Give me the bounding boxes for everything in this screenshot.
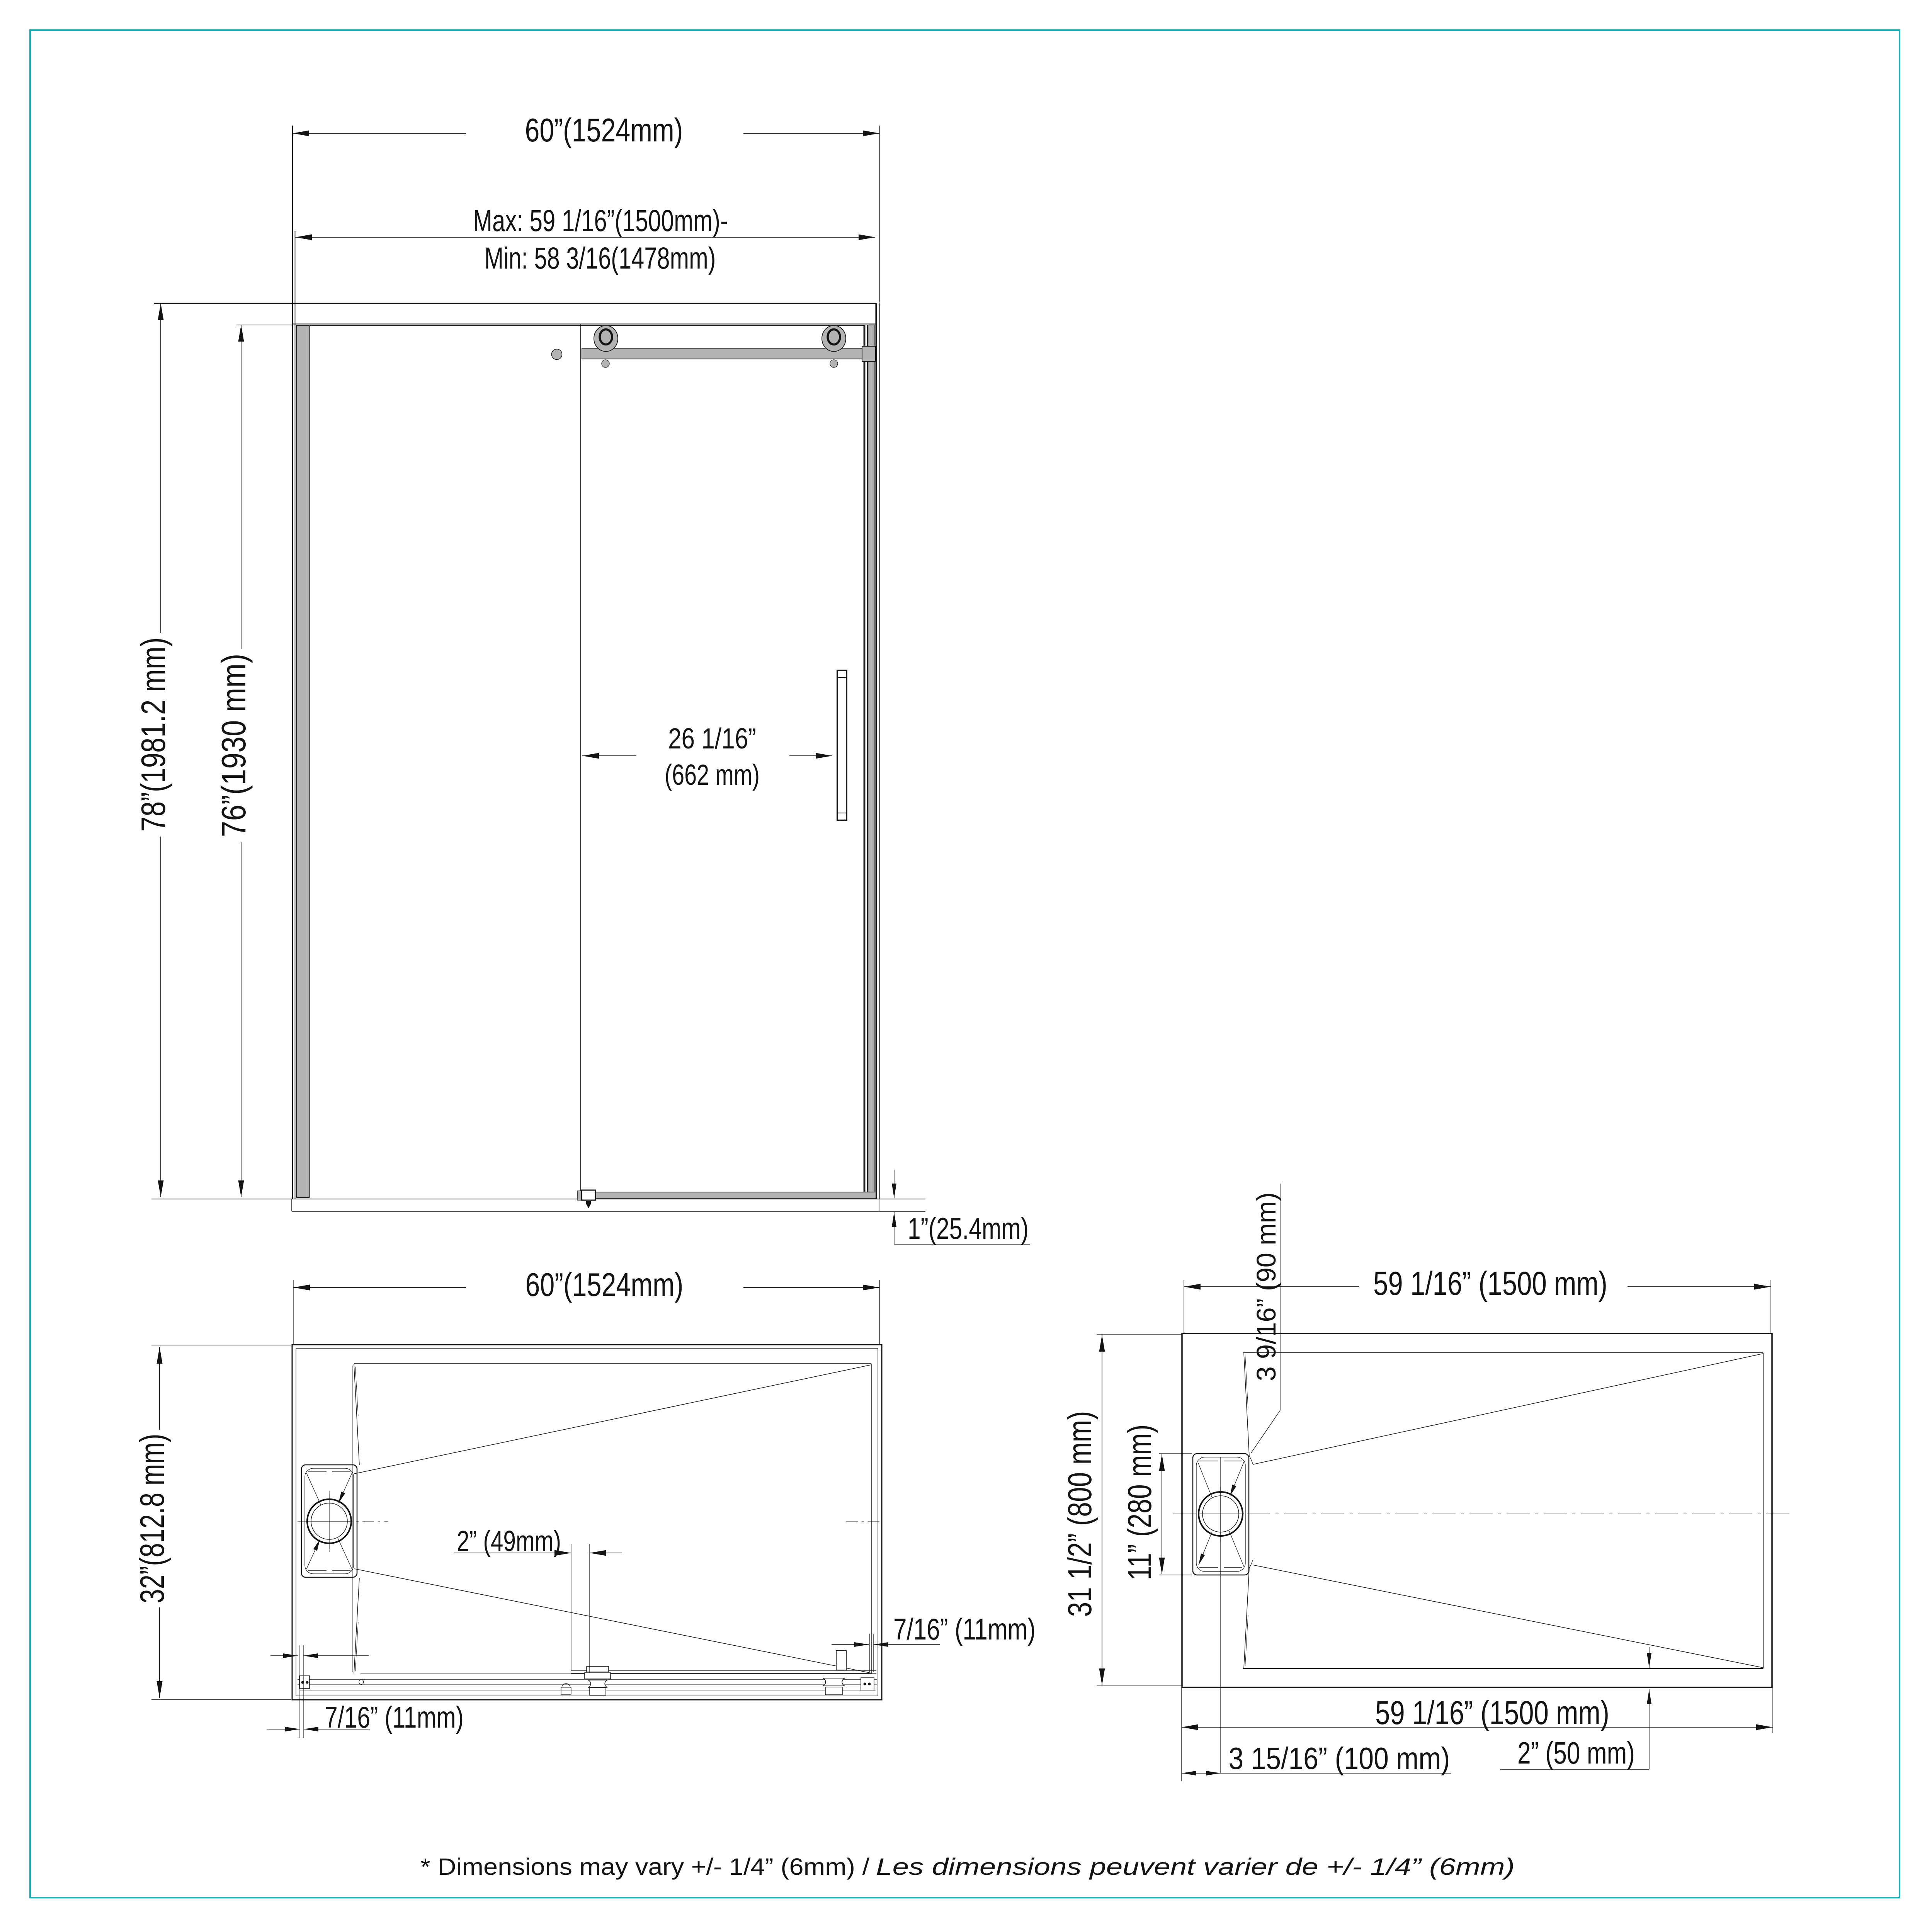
svg-text:59 1/16” (1500 mm): 59 1/16” (1500 mm) — [1373, 1265, 1607, 1302]
svg-text:76”(1930 mm): 76”(1930 mm) — [214, 654, 253, 837]
svg-text:Max: 59 1/16”(1500mm)-: Max: 59 1/16”(1500mm)- — [473, 203, 728, 238]
svg-text:3 15/16” (100 mm): 3 15/16” (100 mm) — [1229, 1741, 1450, 1776]
svg-text:Min: 58 3/16(1478mm): Min: 58 3/16(1478mm) — [485, 241, 716, 275]
svg-text:* Dimensions may vary +/- 1/4”: * Dimensions may vary +/- 1/4” (6mm) / — [420, 1854, 869, 1880]
svg-text:1”(25.4mm): 1”(25.4mm) — [908, 1211, 1029, 1245]
svg-text:(662 mm): (662 mm) — [665, 759, 760, 791]
svg-text:59 1/16” (1500 mm): 59 1/16” (1500 mm) — [1375, 1694, 1609, 1731]
svg-text:11” (280 mm): 11” (280 mm) — [1121, 1425, 1158, 1580]
svg-text:3 9/16” (90 mm): 3 9/16” (90 mm) — [1251, 1192, 1281, 1381]
svg-text:7/16” (11mm): 7/16” (11mm) — [325, 1700, 464, 1734]
svg-text:Les dimensions peuvent varier: Les dimensions peuvent varier de +/- 1/4… — [876, 1854, 1515, 1880]
svg-text:78”(1981.2 mm): 78”(1981.2 mm) — [134, 638, 172, 832]
svg-text:2” (49mm): 2” (49mm) — [457, 1525, 561, 1557]
svg-text:60”(1524mm): 60”(1524mm) — [525, 112, 683, 149]
svg-text:26 1/16”: 26 1/16” — [668, 722, 756, 755]
svg-text:31 1/2” (800 mm): 31 1/2” (800 mm) — [1061, 1411, 1099, 1617]
svg-text:32”(812.8 mm): 32”(812.8 mm) — [133, 1434, 171, 1604]
svg-text:2” (50 mm): 2” (50 mm) — [1517, 1736, 1635, 1770]
svg-text:60”(1524mm): 60”(1524mm) — [526, 1267, 684, 1303]
svg-text:7/16” (11mm): 7/16” (11mm) — [893, 1612, 1036, 1646]
